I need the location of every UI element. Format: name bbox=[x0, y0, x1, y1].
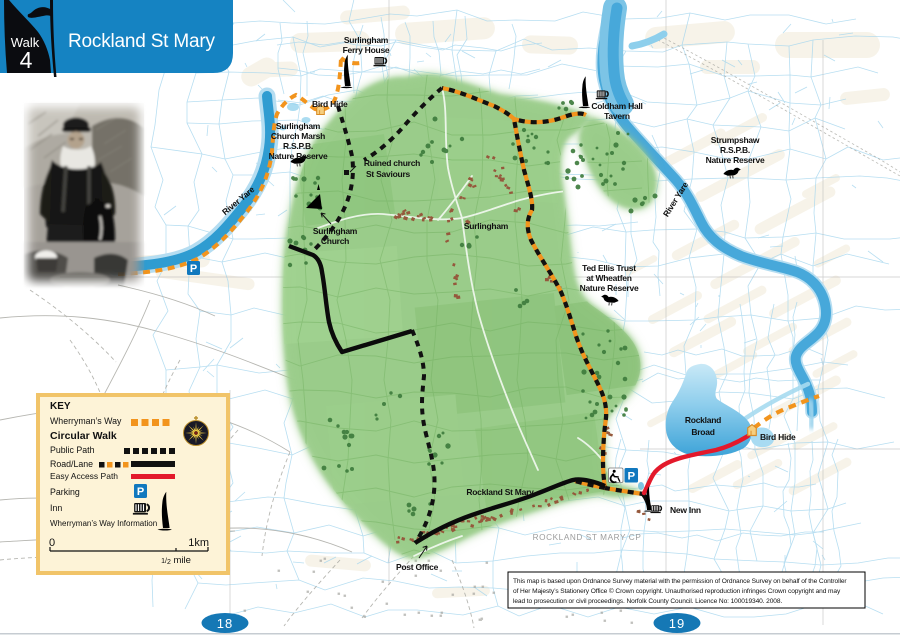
svg-text:at Wheatfen: at Wheatfen bbox=[586, 273, 631, 283]
svg-text:Broad: Broad bbox=[691, 427, 714, 437]
svg-text:Public Path: Public Path bbox=[50, 445, 95, 455]
svg-text:ROCKLAND ST MARY CP: ROCKLAND ST MARY CP bbox=[533, 533, 642, 542]
svg-text:Inn: Inn bbox=[50, 503, 62, 513]
svg-text:Wherryman’s Way: Wherryman’s Way bbox=[50, 416, 122, 426]
svg-text:Surlingham: Surlingham bbox=[464, 221, 509, 231]
svg-text:19: 19 bbox=[669, 616, 685, 631]
svg-text:Strumpshaw: Strumpshaw bbox=[711, 135, 760, 145]
svg-text:lead to prosecution or civil p: lead to prosecution or civil proceedings… bbox=[513, 598, 782, 605]
svg-text:P: P bbox=[137, 486, 144, 498]
svg-text:Easy Access Path: Easy Access Path bbox=[50, 471, 118, 481]
svg-text:Parking: Parking bbox=[50, 487, 80, 497]
svg-text:Wherryman’s Way Information: Wherryman’s Way Information bbox=[50, 519, 157, 528]
svg-text:Road/Lane: Road/Lane bbox=[50, 459, 93, 469]
svg-text:Ferry House: Ferry House bbox=[343, 45, 390, 55]
svg-text:St Saviours: St Saviours bbox=[366, 169, 411, 179]
svg-text:Ted Ellis Trust: Ted Ellis Trust bbox=[582, 263, 636, 273]
svg-text:Rockland St Mary: Rockland St Mary bbox=[68, 31, 215, 52]
svg-text:Nature Reserve: Nature Reserve bbox=[580, 283, 639, 293]
svg-text:4: 4 bbox=[20, 47, 33, 73]
svg-text:Rockland: Rockland bbox=[685, 415, 721, 425]
svg-text:Surlingham: Surlingham bbox=[313, 226, 358, 236]
svg-text:18: 18 bbox=[217, 616, 233, 631]
svg-text:Church: Church bbox=[321, 236, 349, 246]
svg-text:P: P bbox=[627, 471, 635, 483]
svg-text:Circular Walk: Circular Walk bbox=[50, 430, 117, 442]
svg-text:R.S.P.B.: R.S.P.B. bbox=[283, 141, 313, 151]
svg-text:P: P bbox=[190, 263, 197, 275]
svg-text:of Her Majesty’s Stationery Of: of Her Majesty’s Stationery Office © Cro… bbox=[513, 587, 841, 595]
svg-text:This map is based upon Ordnanc: This map is based upon Ordnance Survey m… bbox=[513, 578, 847, 585]
svg-text:1km: 1km bbox=[188, 537, 209, 549]
svg-text:Bird Hide: Bird Hide bbox=[312, 99, 348, 109]
svg-text:Ruined church: Ruined church bbox=[364, 158, 420, 168]
svg-text:Church Marsh: Church Marsh bbox=[271, 131, 325, 141]
svg-text:Rockland St Mary: Rockland St Mary bbox=[466, 487, 534, 497]
svg-text:Bird Hide: Bird Hide bbox=[760, 432, 796, 442]
svg-text:Surlingham: Surlingham bbox=[344, 35, 389, 45]
svg-text:Tavern: Tavern bbox=[604, 111, 630, 121]
svg-text:Nature Reserve: Nature Reserve bbox=[269, 151, 328, 161]
svg-text:Surlingham: Surlingham bbox=[276, 121, 321, 131]
svg-text:New Inn: New Inn bbox=[670, 505, 701, 515]
svg-text:Post Office: Post Office bbox=[396, 562, 439, 572]
svg-text:Nature Reserve: Nature Reserve bbox=[706, 155, 765, 165]
svg-text:KEY: KEY bbox=[50, 401, 71, 412]
svg-text:Coldham Hall: Coldham Hall bbox=[591, 101, 642, 111]
svg-text:R.S.P.B.: R.S.P.B. bbox=[720, 145, 750, 155]
